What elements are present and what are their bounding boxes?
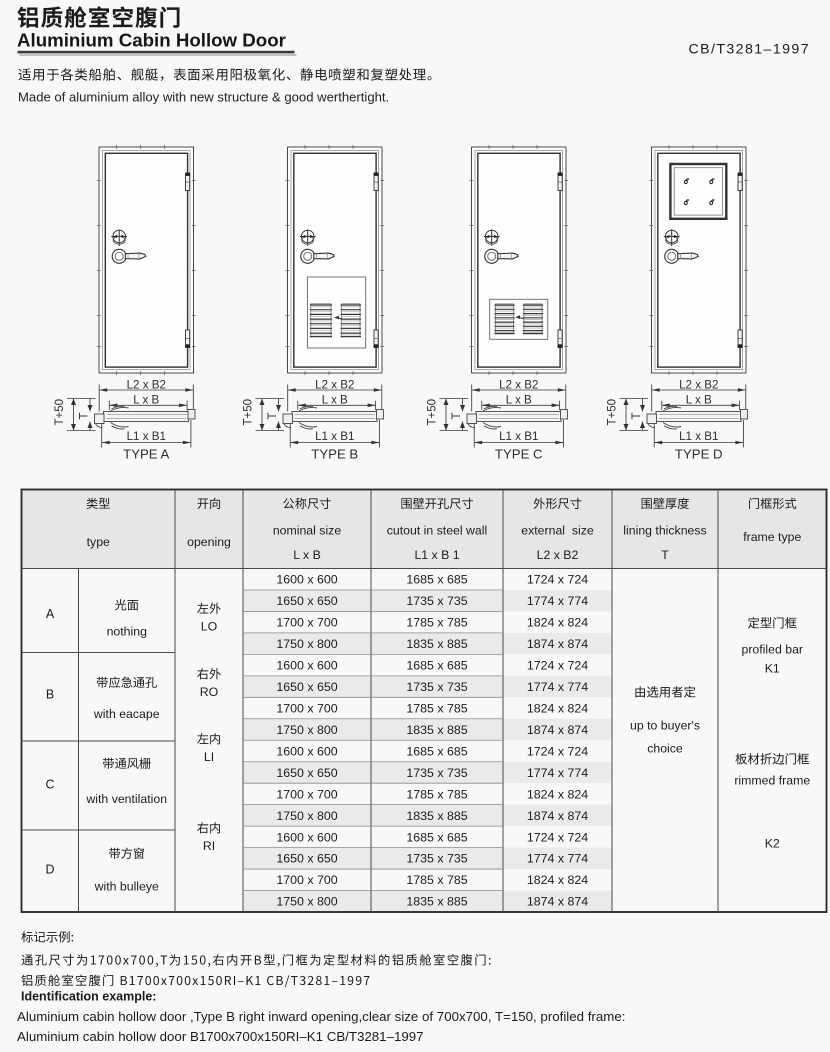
svg-text:1750 x 800: 1750 x 800 bbox=[276, 637, 337, 651]
svg-text:L2 x B2: L2 x B2 bbox=[315, 379, 354, 392]
svg-text:rimmed frame: rimmed frame bbox=[734, 774, 810, 788]
svg-text:1650 x 650: 1650 x 650 bbox=[276, 594, 337, 608]
svg-text:TYPE D: TYPE D bbox=[675, 447, 723, 462]
svg-text:L x B: L x B bbox=[686, 394, 712, 407]
svg-text:1750 x 800: 1750 x 800 bbox=[276, 723, 337, 737]
svg-text:1724 x 724: 1724 x 724 bbox=[527, 573, 588, 587]
svg-text:profiled bar: profiled bar bbox=[741, 643, 803, 657]
svg-text:Identification example:: Identification example: bbox=[21, 990, 156, 1004]
svg-text:nothing: nothing bbox=[107, 624, 148, 638]
svg-text:LO: LO bbox=[201, 619, 217, 633]
svg-text:L x B: L x B bbox=[293, 548, 321, 562]
svg-text:with eacape: with eacape bbox=[93, 707, 160, 721]
svg-text:1600 x 600: 1600 x 600 bbox=[276, 659, 337, 673]
svg-text:T: T bbox=[79, 412, 91, 419]
svg-text:with ventilation: with ventilation bbox=[85, 792, 167, 806]
svg-text:1824 x 824: 1824 x 824 bbox=[527, 873, 588, 887]
svg-text:RO: RO bbox=[200, 685, 218, 699]
svg-text:K2: K2 bbox=[765, 837, 780, 851]
svg-text:1874 x 874: 1874 x 874 bbox=[527, 895, 588, 909]
svg-text:T: T bbox=[661, 548, 669, 562]
svg-text:L1 x B1: L1 x B1 bbox=[315, 430, 354, 443]
svg-text:1724 x 724: 1724 x 724 bbox=[527, 659, 588, 673]
svg-text:up to buyer's: up to buyer's bbox=[630, 719, 700, 733]
svg-text:1835 x 885: 1835 x 885 bbox=[406, 723, 467, 737]
svg-text:1835 x 885: 1835 x 885 bbox=[406, 895, 467, 909]
svg-text:1774 x 774: 1774 x 774 bbox=[527, 766, 588, 780]
svg-text:L2 x B2: L2 x B2 bbox=[499, 379, 538, 392]
svg-text:L x B: L x B bbox=[322, 394, 348, 407]
svg-text:external size: external size bbox=[521, 524, 594, 538]
svg-text:1600 x 600: 1600 x 600 bbox=[276, 573, 337, 587]
svg-text:Aluminium Cabin Hollow Door: Aluminium Cabin Hollow Door bbox=[17, 30, 286, 51]
svg-text:L x B: L x B bbox=[133, 394, 159, 407]
svg-text:1685 x 685: 1685 x 685 bbox=[406, 744, 467, 758]
svg-text:1685 x 685: 1685 x 685 bbox=[406, 830, 467, 844]
svg-text:1874 x 874: 1874 x 874 bbox=[527, 809, 588, 823]
svg-text:T: T bbox=[267, 412, 279, 419]
svg-text:T+50: T+50 bbox=[607, 399, 619, 426]
svg-text:1650 x 650: 1650 x 650 bbox=[276, 680, 337, 694]
svg-text:L1 x B1: L1 x B1 bbox=[127, 430, 166, 443]
svg-text:Made of aluminium alloy with n: Made of aluminium alloy with new structu… bbox=[18, 90, 389, 105]
svg-text:T: T bbox=[631, 412, 643, 419]
svg-text:D: D bbox=[45, 862, 54, 876]
svg-text:opening: opening bbox=[187, 535, 231, 549]
svg-text:1824 x 824: 1824 x 824 bbox=[527, 701, 588, 715]
svg-text:T+50: T+50 bbox=[427, 399, 439, 426]
svg-text:1774 x 774: 1774 x 774 bbox=[527, 852, 588, 866]
svg-text:T: T bbox=[451, 412, 463, 419]
svg-text:1650 x 650: 1650 x 650 bbox=[276, 766, 337, 780]
svg-text:1785 x 785: 1785 x 785 bbox=[406, 873, 467, 887]
svg-text:1700 x 700: 1700 x 700 bbox=[276, 873, 337, 887]
svg-text:TYPE A: TYPE A bbox=[123, 447, 169, 462]
svg-text:Aluminium cabin hollow door B1: Aluminium cabin hollow door B1700x700x15… bbox=[17, 1029, 424, 1044]
svg-text:1750 x 800: 1750 x 800 bbox=[276, 895, 337, 909]
svg-text:1874 x 874: 1874 x 874 bbox=[527, 723, 588, 737]
svg-text:frame type: frame type bbox=[743, 530, 801, 544]
svg-text:1735 x 735: 1735 x 735 bbox=[406, 680, 467, 694]
svg-text:1774 x 774: 1774 x 774 bbox=[527, 594, 588, 608]
svg-text:1685 x 685: 1685 x 685 bbox=[406, 659, 467, 673]
svg-text:lining thickness: lining thickness bbox=[623, 524, 706, 538]
svg-text:K1: K1 bbox=[765, 662, 780, 676]
svg-text:1735 x 735: 1735 x 735 bbox=[406, 766, 467, 780]
svg-text:TYPE B: TYPE B bbox=[311, 447, 358, 462]
svg-text:1685 x 685: 1685 x 685 bbox=[406, 573, 467, 587]
svg-text:1600 x 600: 1600 x 600 bbox=[276, 830, 337, 844]
svg-text:1785 x 785: 1785 x 785 bbox=[406, 787, 467, 801]
svg-text:cutout in steel wall: cutout in steel wall bbox=[387, 524, 487, 538]
svg-text:1774 x 774: 1774 x 774 bbox=[527, 680, 588, 694]
svg-text:1735 x 735: 1735 x 735 bbox=[406, 594, 467, 608]
svg-text:1785 x 785: 1785 x 785 bbox=[406, 616, 467, 630]
svg-text:TYPE C: TYPE C bbox=[495, 447, 543, 462]
svg-text:L1 x B 1: L1 x B 1 bbox=[414, 548, 459, 562]
svg-text:A: A bbox=[46, 607, 55, 621]
svg-text:nominal size: nominal size bbox=[273, 524, 342, 538]
svg-text:1824 x 824: 1824 x 824 bbox=[527, 616, 588, 630]
svg-text:L2 x B2: L2 x B2 bbox=[679, 379, 718, 392]
svg-text:1700 x 700: 1700 x 700 bbox=[276, 701, 337, 715]
svg-text:B: B bbox=[46, 687, 54, 701]
svg-text:L1 x B1: L1 x B1 bbox=[679, 430, 718, 443]
svg-text:1785 x 785: 1785 x 785 bbox=[406, 701, 467, 715]
svg-text:choice: choice bbox=[647, 742, 683, 756]
svg-text:T+50: T+50 bbox=[54, 399, 66, 426]
svg-text:CB/T3281–1997: CB/T3281–1997 bbox=[688, 42, 810, 58]
svg-text:LI: LI bbox=[204, 750, 214, 764]
svg-text:1724 x 724: 1724 x 724 bbox=[527, 744, 588, 758]
svg-text:1600 x 600: 1600 x 600 bbox=[276, 744, 337, 758]
svg-text:1750 x 800: 1750 x 800 bbox=[276, 809, 337, 823]
svg-text:1874 x 874: 1874 x 874 bbox=[527, 637, 588, 651]
svg-text:T+50: T+50 bbox=[243, 399, 255, 426]
svg-text:1835 x 885: 1835 x 885 bbox=[406, 637, 467, 651]
svg-text:type: type bbox=[87, 535, 110, 549]
svg-text:Aluminium cabin hollow door ,T: Aluminium cabin hollow door ,Type B righ… bbox=[17, 1009, 625, 1024]
svg-text:1824 x 824: 1824 x 824 bbox=[527, 787, 588, 801]
svg-text:1700 x 700: 1700 x 700 bbox=[276, 616, 337, 630]
svg-text:L2 x B2: L2 x B2 bbox=[127, 379, 166, 392]
svg-text:L x B: L x B bbox=[506, 394, 532, 407]
svg-text:1650 x 650: 1650 x 650 bbox=[276, 852, 337, 866]
svg-text:with bulleye: with bulleye bbox=[94, 879, 159, 893]
svg-text:L1 x B1: L1 x B1 bbox=[499, 430, 538, 443]
svg-text:C: C bbox=[45, 777, 54, 791]
svg-text:1700 x 700: 1700 x 700 bbox=[276, 787, 337, 801]
svg-text:L2 x B2: L2 x B2 bbox=[537, 548, 579, 562]
svg-text:RI: RI bbox=[203, 839, 215, 853]
svg-text:1724 x 724: 1724 x 724 bbox=[527, 830, 588, 844]
svg-text:1835 x 885: 1835 x 885 bbox=[406, 809, 467, 823]
svg-text:1735 x 735: 1735 x 735 bbox=[406, 852, 467, 866]
